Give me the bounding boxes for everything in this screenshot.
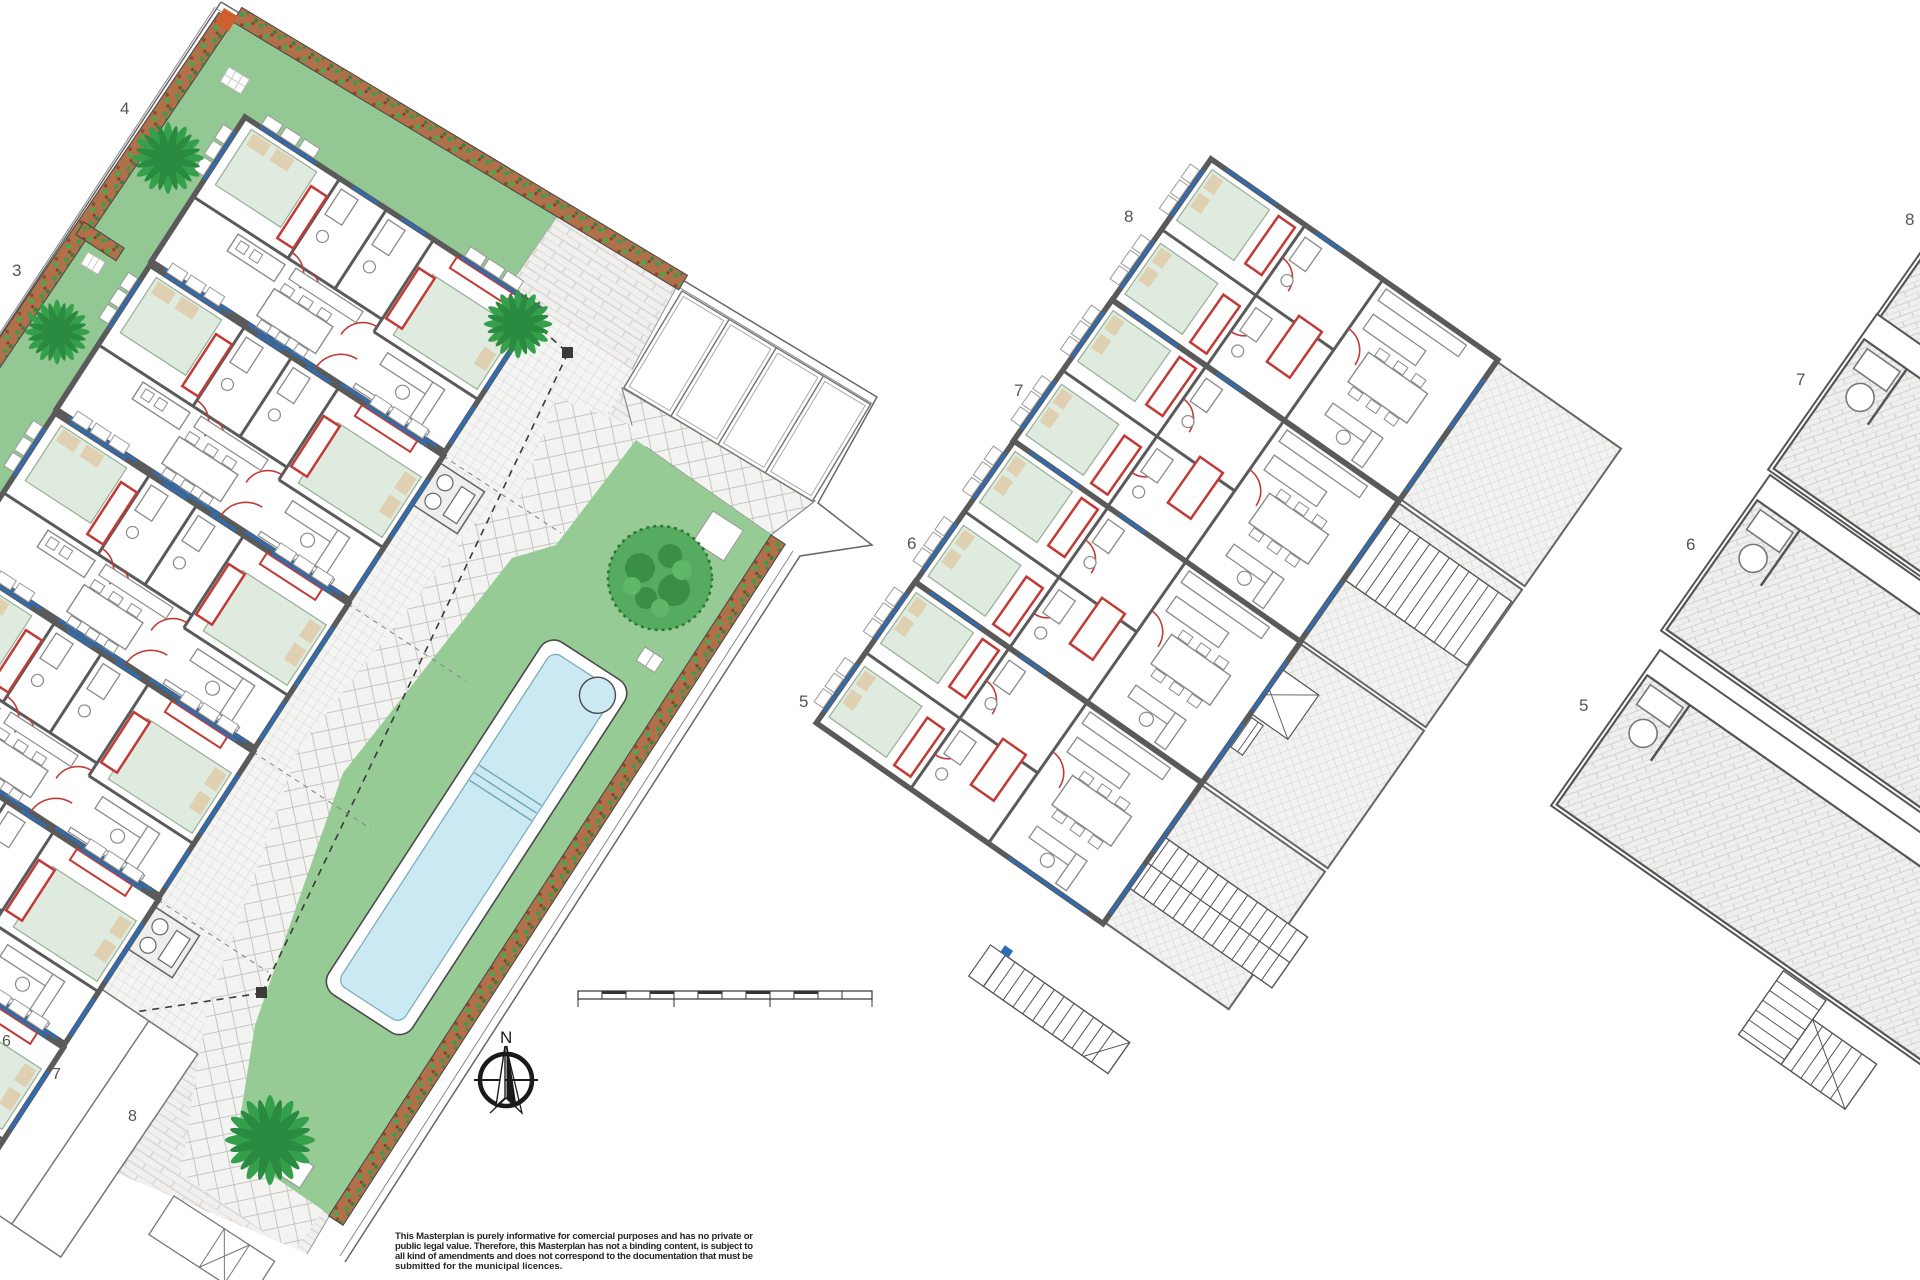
svg-text:N: N xyxy=(500,1028,512,1047)
svg-text:6: 6 xyxy=(2,1033,11,1050)
svg-text:7: 7 xyxy=(1796,370,1805,389)
svg-text:submitted for the municipal li: submitted for the municipal licences. xyxy=(395,1261,562,1272)
svg-text:3: 3 xyxy=(12,261,21,280)
svg-text:8: 8 xyxy=(1905,210,1914,229)
svg-text:6: 6 xyxy=(1686,535,1695,554)
svg-text:7: 7 xyxy=(1014,381,1023,400)
svg-text:4: 4 xyxy=(120,99,129,118)
svg-text:5: 5 xyxy=(1579,696,1588,715)
svg-text:5: 5 xyxy=(799,692,808,711)
svg-text:8: 8 xyxy=(128,1108,137,1125)
svg-text:6: 6 xyxy=(907,534,916,553)
svg-text:8: 8 xyxy=(1124,207,1133,226)
svg-text:7: 7 xyxy=(52,1066,61,1083)
